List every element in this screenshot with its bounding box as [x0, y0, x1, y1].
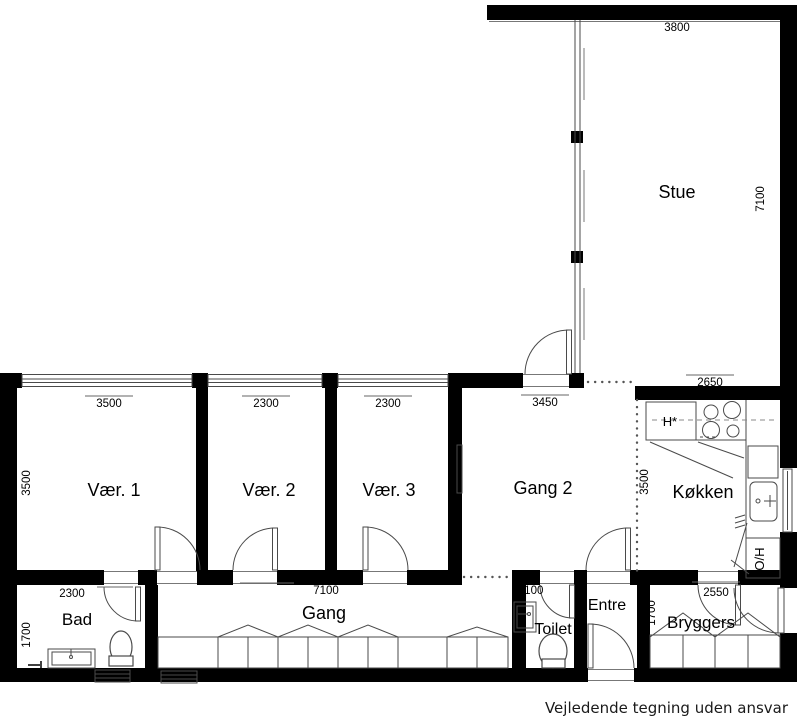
room-label-vaer1: Vær. 1: [87, 480, 140, 500]
dim-stue-height: 7100: [755, 186, 767, 212]
dim-gang2-width: 3450: [532, 397, 558, 409]
room-label-entre: Entre: [588, 597, 626, 614]
room-label-stue: Stue: [658, 182, 695, 202]
dim-vaer1-height: 3500: [21, 470, 33, 496]
dim-koekken-height: 3500: [639, 469, 651, 495]
toilet-wc-icon: [539, 634, 567, 668]
dim-bryggers-height: 1700: [646, 600, 658, 626]
room-label-bryggers: Bryggers: [667, 613, 735, 632]
bad-toilet-icon: [109, 631, 133, 666]
disclaimer-text: Vejledende tegning uden ansvar: [545, 699, 789, 717]
oven-label: O/H: [752, 547, 767, 570]
room-label-gang: Gang: [302, 603, 346, 623]
room-label-gang2: Gang 2: [513, 478, 572, 498]
room-label-koekken: Køkken: [672, 482, 733, 502]
dim-bad-height: 1700: [21, 622, 33, 648]
dim-gang-width: 7100: [313, 585, 339, 597]
room-label-bad: Bad: [62, 610, 92, 629]
dim-stue-width: 3800: [664, 22, 690, 34]
dim-toilet-width: 1100: [519, 585, 544, 597]
dim-bad-width: 2300: [59, 588, 85, 600]
room-label-vaer3: Vær. 3: [362, 480, 415, 500]
floor-plan: Stue Vær. 1 Vær. 2 Vær. 3 Gang 2 Køkken …: [0, 0, 800, 727]
room-label-toilet: Toilet: [534, 621, 572, 638]
hood-label: H*: [663, 414, 677, 429]
dim-bryggers-width: 2550: [703, 587, 729, 599]
dim-vaer2-width: 2300: [253, 398, 279, 410]
dim-vaer3-width: 2300: [375, 398, 401, 410]
dim-koekken-width: 2650: [697, 377, 723, 389]
dim-vaer1-width: 3500: [96, 398, 122, 410]
floor-plan-page: Stue Vær. 1 Vær. 2 Vær. 3 Gang 2 Køkken …: [0, 0, 800, 727]
room-label-vaer2: Vær. 2: [242, 480, 295, 500]
